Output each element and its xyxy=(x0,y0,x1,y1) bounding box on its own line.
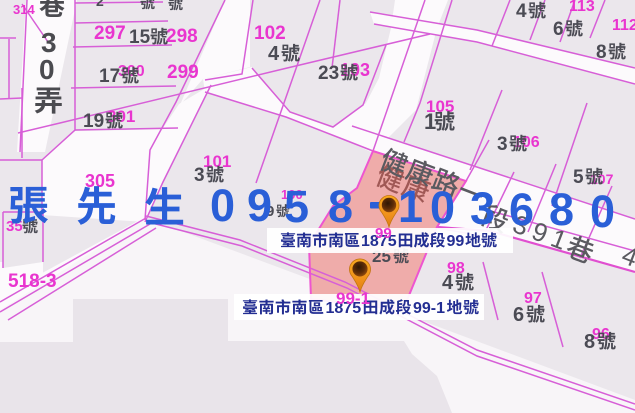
svg-text:9: 9 xyxy=(247,180,272,231)
svg-text:314: 314 xyxy=(13,2,35,17)
svg-text:19: 19 xyxy=(83,111,104,132)
svg-text:99: 99 xyxy=(447,233,465,250)
svg-text:6: 6 xyxy=(553,19,564,40)
svg-text:5: 5 xyxy=(573,167,584,188)
svg-text:6: 6 xyxy=(509,184,534,235)
svg-text:0: 0 xyxy=(210,180,235,231)
svg-text:3: 3 xyxy=(497,134,508,155)
svg-text:97: 97 xyxy=(524,290,542,307)
svg-text:15: 15 xyxy=(129,27,151,48)
svg-text:99-1: 99-1 xyxy=(413,300,445,317)
svg-text:0: 0 xyxy=(590,186,615,237)
svg-text:102: 102 xyxy=(254,23,286,44)
svg-text:4: 4 xyxy=(516,1,527,22)
svg-text:8: 8 xyxy=(549,184,574,235)
svg-text:0: 0 xyxy=(430,182,455,233)
svg-text:298: 298 xyxy=(166,26,198,47)
svg-text:6: 6 xyxy=(513,304,524,326)
svg-text:23: 23 xyxy=(318,63,339,84)
svg-text:8: 8 xyxy=(596,42,607,63)
svg-text:297: 297 xyxy=(94,23,126,44)
svg-text:5: 5 xyxy=(284,181,309,232)
svg-text:112: 112 xyxy=(612,17,635,34)
svg-text:3: 3 xyxy=(194,165,205,186)
svg-text:8: 8 xyxy=(584,331,595,353)
svg-text:113: 113 xyxy=(569,0,595,15)
svg-text:2: 2 xyxy=(96,0,104,9)
svg-text:8: 8 xyxy=(328,181,353,232)
svg-text:518-3: 518-3 xyxy=(8,271,57,292)
svg-text:4: 4 xyxy=(442,272,454,294)
svg-text:0: 0 xyxy=(39,54,55,85)
svg-text:4: 4 xyxy=(268,43,280,65)
svg-text:3: 3 xyxy=(470,183,495,234)
svg-text:1: 1 xyxy=(398,181,423,232)
svg-text:1: 1 xyxy=(424,109,436,134)
svg-text:99-1: 99-1 xyxy=(336,289,370,308)
svg-text:299: 299 xyxy=(167,62,199,83)
svg-text:101: 101 xyxy=(203,152,231,171)
svg-text:17: 17 xyxy=(99,66,120,87)
